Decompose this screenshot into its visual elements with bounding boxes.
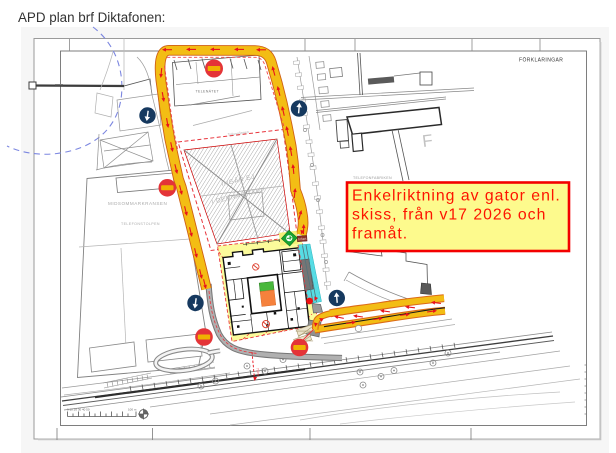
svg-text:TELEFONFABRIKEN: TELEFONFABRIKEN — [353, 176, 392, 180]
svg-text:framåt.: framåt. — [352, 225, 408, 243]
svg-text:skiss, från v17 2026 och: skiss, från v17 2026 och — [352, 206, 546, 224]
svg-text:TELEFONSTOLPEN: TELEFONSTOLPEN — [121, 222, 160, 226]
svg-text:TELENÄTET: TELENÄTET — [196, 90, 220, 94]
svg-text:0 10 20 30 40 50: 0 10 20 30 40 50 — [67, 408, 90, 412]
svg-text:Infart: Infart — [298, 237, 306, 242]
svg-text:Enkelriktning av gator enl.: Enkelriktning av gator enl. — [352, 188, 561, 205]
svg-text:MIDSOMMARKRANSEN: MIDSOMMARKRANSEN — [108, 201, 167, 206]
svg-text:100 m: 100 m — [128, 408, 137, 412]
svg-text:FÖRKLARINGAR: FÖRKLARINGAR — [519, 57, 563, 64]
